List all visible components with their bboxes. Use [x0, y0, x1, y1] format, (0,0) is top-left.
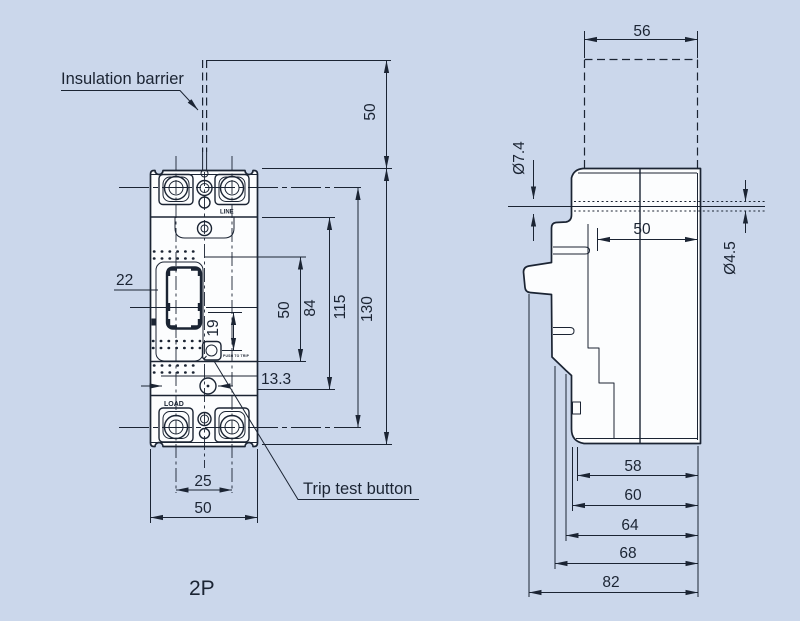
front-view: LINE [61, 60, 419, 600]
dim-hole: Ø4.5 [722, 241, 739, 275]
dim-total-width: 50 [194, 500, 212, 517]
load-marking: LOAD [164, 401, 184, 408]
side-view: Ø7.4 Ø4.5 56 50 58 60 [508, 23, 765, 597]
insulation-barrier [203, 60, 207, 171]
dim-barrier-width: 56 [633, 23, 650, 40]
handle-lock-tab [152, 319, 157, 326]
dim-depth-58: 58 [624, 458, 641, 475]
insulation-barrier-label: Insulation barrier [61, 70, 184, 88]
mccb-dimension-drawing: LINE [0, 0, 800, 621]
push-to-trip-marking: PUSH TO TRIP [223, 354, 250, 358]
dim-depth-68: 68 [619, 545, 636, 562]
dim-trip-offset: 13.3 [261, 371, 291, 388]
side-body [524, 169, 701, 444]
dim-depth-64: 64 [621, 517, 639, 534]
dim-cover-height: 50 [276, 301, 293, 319]
dim-total-height: 130 [359, 296, 376, 322]
dim-counterbore: Ø7.4 [511, 141, 528, 175]
dim-inner-height: 84 [302, 299, 319, 317]
trip-test-label: Trip test button [303, 480, 412, 498]
dim-hole-offset: 50 [633, 221, 651, 238]
dim-terminal-pitch: 25 [194, 473, 211, 490]
side-barrier-envelope [585, 31, 698, 169]
insulation-barrier-callout: Insulation barrier [61, 70, 198, 110]
dim-handle-width: 22 [116, 272, 133, 289]
dim-depth-82: 82 [602, 574, 619, 591]
dim-handle-window: 19 [205, 319, 222, 336]
dim-depth-60: 60 [624, 487, 642, 504]
dim-barrier-height: 50 [362, 103, 379, 121]
pole-count-label: 2P [189, 577, 215, 600]
dim-terminal-span: 115 [332, 295, 349, 320]
